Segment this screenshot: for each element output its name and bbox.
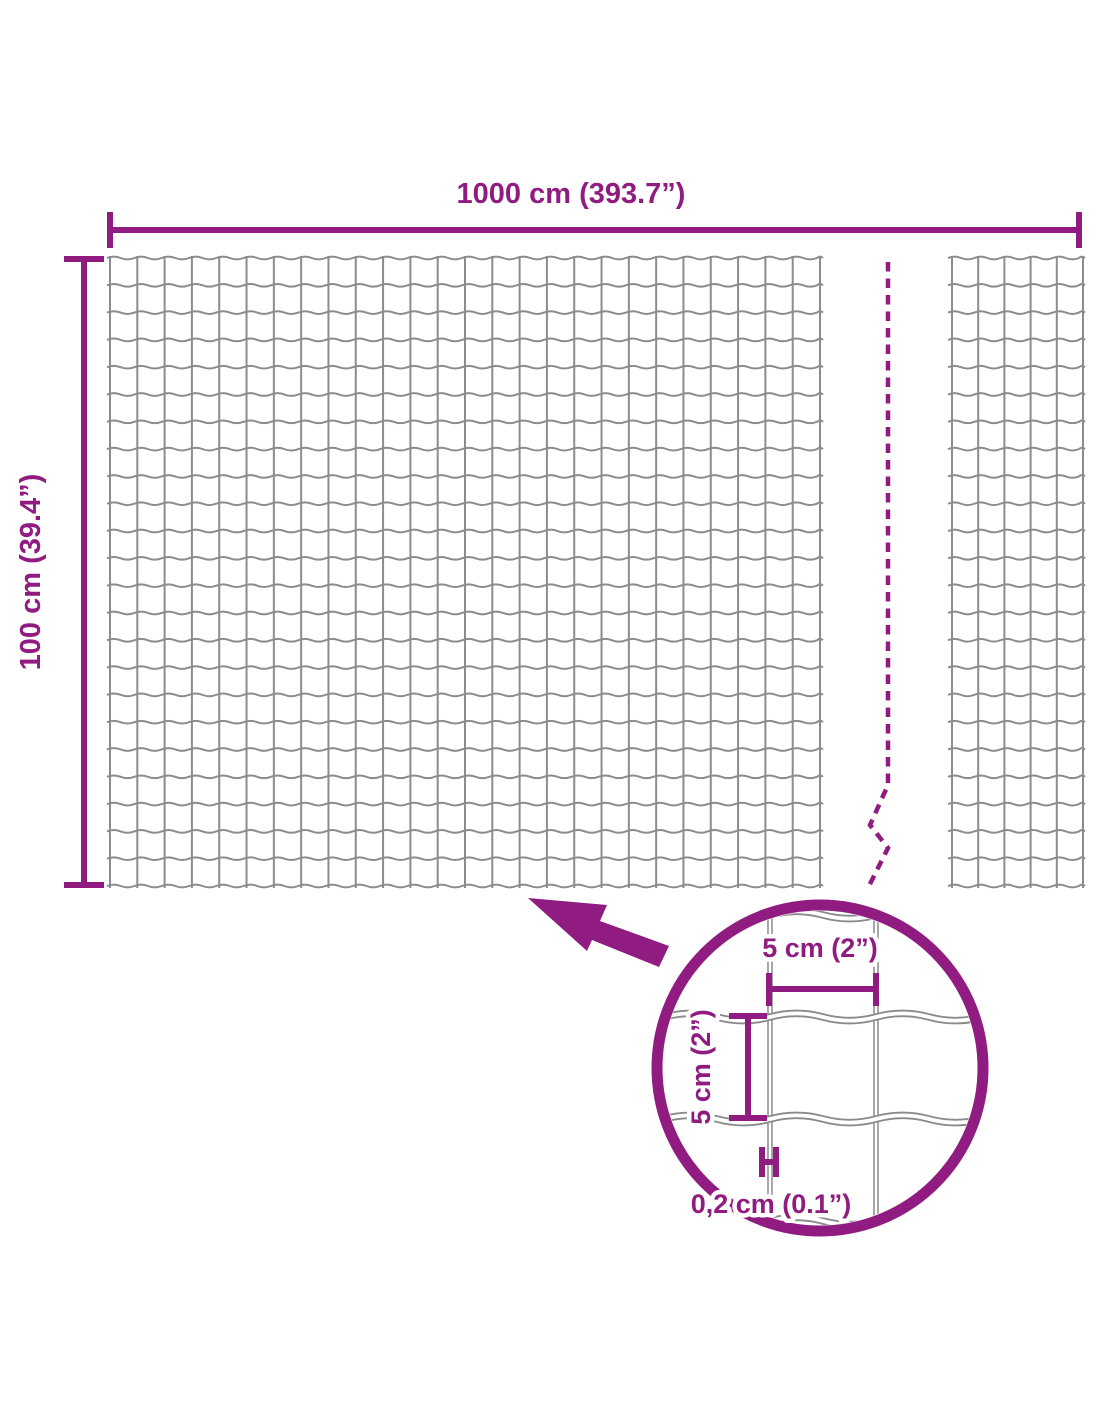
lens-cell-height-dimension	[729, 1016, 767, 1118]
wire-mesh-fence-diagram: 1000 cm (393.7”) 100 cm (39.4”)	[0, 0, 1100, 1422]
cell-height-label: 5 cm (2”)	[686, 1009, 716, 1125]
width-label: 1000 cm (393.7”)	[457, 178, 686, 210]
right-mesh-panel	[948, 256, 1085, 888]
panel-break-line	[868, 262, 888, 888]
top-width-dimension: 1000 cm (393.7”)	[110, 178, 1079, 248]
wire-thickness-label: 0,2 cm (0.1”)	[691, 1189, 852, 1219]
lens-cell-width-dimension	[769, 973, 876, 1006]
left-height-dimension: 100 cm (39.4”)	[15, 259, 104, 885]
zoom-arrow-icon	[528, 898, 669, 967]
main-mesh-panel	[107, 256, 823, 888]
cell-width-label: 5 cm (2”)	[762, 933, 878, 963]
height-label: 100 cm (39.4”)	[15, 474, 47, 671]
product-dimension-diagram: { "colors": { "accent": "#911C81", "wire…	[0, 0, 1100, 1422]
